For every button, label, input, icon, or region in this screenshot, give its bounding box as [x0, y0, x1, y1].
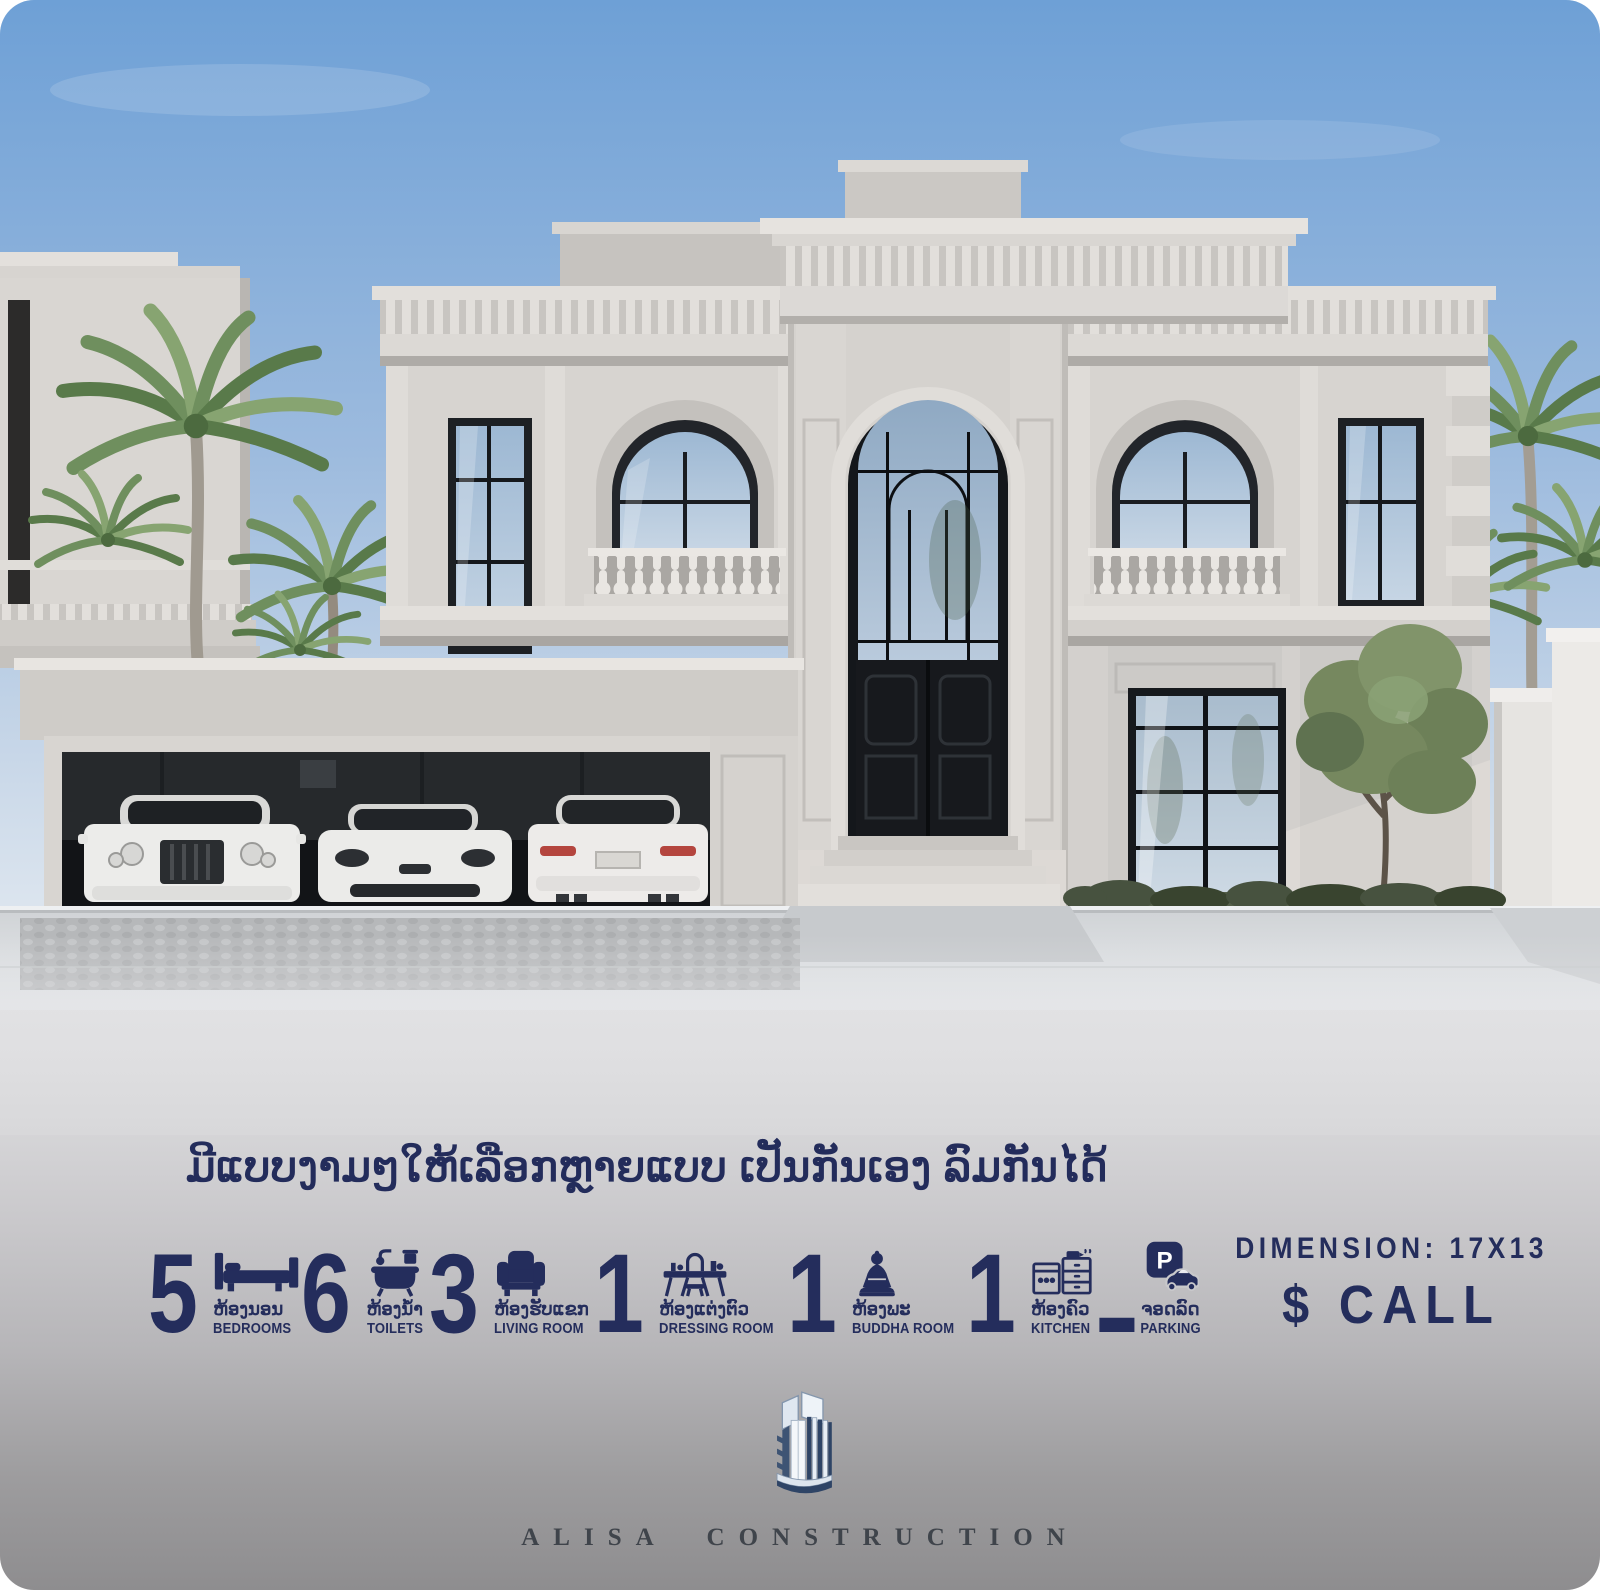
bedrooms-count: 5 [148, 1251, 195, 1336]
upper-window-right-rect [1338, 418, 1424, 608]
ground-window [1128, 688, 1286, 906]
garage [14, 658, 804, 922]
bed-icon [213, 1249, 301, 1297]
stat-buddha-room: 1 ຫ້ອງພະ BUDDHA ROOM [787, 1249, 966, 1336]
buddha-room-count: 1 [787, 1251, 834, 1336]
dressing-room-count: 1 [594, 1251, 641, 1336]
armchair-icon [494, 1249, 594, 1297]
dressing-table-icon [659, 1249, 786, 1297]
photo-fade [0, 935, 1600, 1135]
toilets-label-en: TOILETS [367, 1322, 423, 1337]
price-label: $ CALL [1282, 1274, 1501, 1336]
entrance-door [856, 660, 1000, 836]
corner-quoins [1446, 366, 1490, 606]
dimension-label: DIMENSION: 17X13 [1235, 1232, 1547, 1266]
stat-bedrooms: 5 ຫ້ອງນອນ BEDROOMS [148, 1249, 301, 1336]
living-room-count: 3 [429, 1251, 476, 1336]
headline: ມີແບບງາມໆໃຫ້ເລືອກຫຼາຍແບບ ເປັນກັນເອງ ລົມກ… [186, 1142, 1386, 1191]
kitchen-label-en: KITCHEN [1031, 1322, 1090, 1337]
bathtub-icon [367, 1249, 429, 1297]
dimension-price-block: DIMENSION: 17X13 $ CALL [1214, 1232, 1569, 1336]
stats-row: 5 ຫ້ອງນອນ BEDROOMS 6 [148, 1232, 1458, 1336]
stat-toilets: 6 ຫ້ອງນ້ຳ TOILETS [301, 1249, 429, 1336]
living-room-label-lo: ຫ້ອງຮັບແຂກ [494, 1300, 594, 1319]
svg-text:P: P [1157, 1247, 1173, 1274]
kitchen-count: 1 [966, 1251, 1013, 1336]
separator-dash: - [1097, 1295, 1137, 1336]
stat-kitchen: 1 [966, 1249, 1097, 1336]
toilets-label-lo: ຫ້ອງນ້ຳ [367, 1300, 429, 1319]
kitchen-icon [1031, 1249, 1097, 1297]
balcony-left [584, 548, 790, 606]
parking-label-en: PARKING [1140, 1322, 1200, 1337]
brand-logo [747, 1388, 853, 1509]
building-logo-icon [747, 1388, 853, 1504]
dressing-room-label-lo: ຫ້ອງແຕ່ງຕົວ [659, 1300, 786, 1319]
balcony-right [1084, 548, 1290, 606]
buddha-icon [852, 1249, 966, 1297]
living-room-label-en: LIVING ROOM [494, 1322, 584, 1337]
toilets-count: 6 [301, 1251, 348, 1336]
buddha-room-label-lo: ຫ້ອງພະ [852, 1300, 966, 1319]
neighbor-building [0, 252, 260, 668]
poster: ມີແບບງາມໆໃຫ້ເລືອກຫຼາຍແບບ ເປັນກັນເອງ ລົມກ… [0, 0, 1600, 1590]
cloud [1120, 120, 1440, 160]
parking-group: P ຈອດລົດ PARKING [1137, 1240, 1204, 1336]
dressing-room-label-en: DRESSING ROOM [659, 1322, 774, 1337]
parking-label-lo: ຈອດລົດ [1141, 1300, 1199, 1319]
bedrooms-label-en: BEDROOMS [213, 1322, 292, 1337]
buddha-room-label-en: BUDDHA ROOM [852, 1322, 954, 1337]
brand-name: ALISA CONSTRUCTION [0, 1524, 1600, 1552]
stat-living-room: 3 ຫ້ອງຮັບແຂກ LIVING ROOM [429, 1249, 594, 1336]
bedrooms-label-lo: ຫ້ອງນອນ [213, 1300, 301, 1319]
kitchen-label-lo: ຫ້ອງຄົວ [1031, 1300, 1097, 1319]
stat-dressing-room: 1 ຫ້ອງແຕ່ງຕົວ DRESSING RO [594, 1249, 787, 1336]
hero-photo [0, 0, 1600, 1135]
parking-icon: P [1141, 1240, 1199, 1297]
cloud [50, 64, 430, 116]
